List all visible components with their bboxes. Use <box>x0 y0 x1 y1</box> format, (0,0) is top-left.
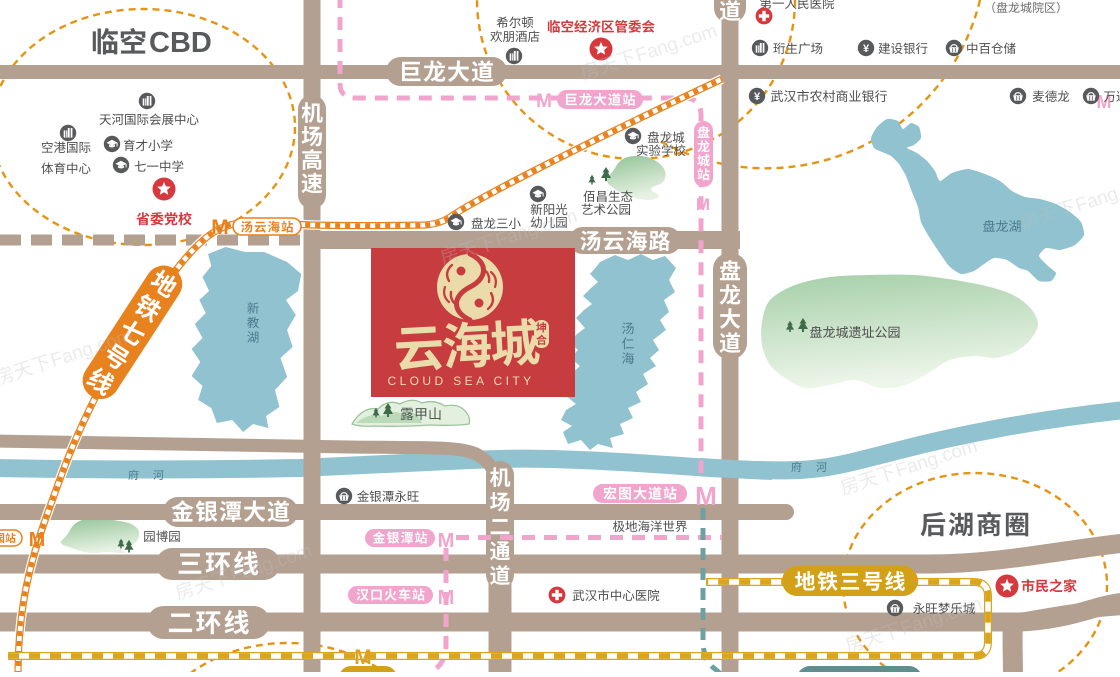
svg-text:M: M <box>29 529 46 551</box>
svg-text:M: M <box>536 91 552 112</box>
svg-text:M: M <box>438 530 455 552</box>
svg-text:M: M <box>354 646 372 669</box>
svg-text:M: M <box>438 587 455 609</box>
svg-text:CBD: CBD <box>149 27 212 59</box>
svg-text:¥: ¥ <box>754 91 761 103</box>
svg-text:M: M <box>695 481 717 511</box>
svg-text:M: M <box>696 195 710 214</box>
svg-text:¥: ¥ <box>863 43 870 55</box>
svg-text:CLOUD SEA CITY: CLOUD SEA CITY <box>388 374 535 388</box>
svg-text:M: M <box>211 216 229 239</box>
